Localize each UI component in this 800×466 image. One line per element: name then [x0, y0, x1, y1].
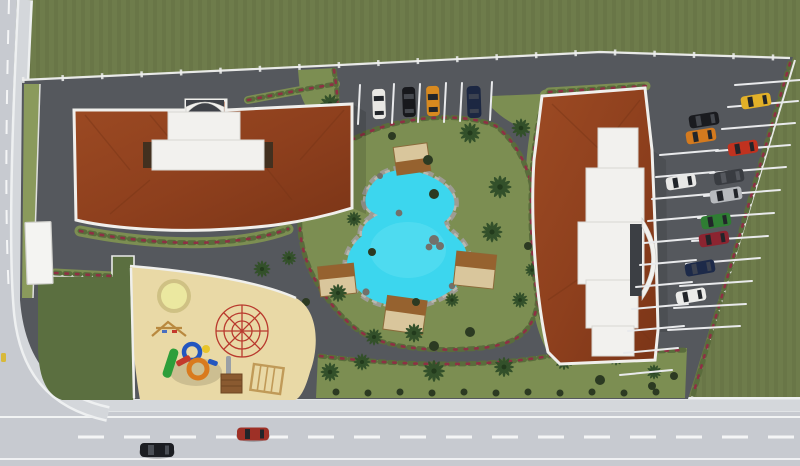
shrub	[493, 390, 500, 397]
swing-seat	[162, 330, 167, 333]
shrub	[423, 155, 433, 165]
shrub	[368, 248, 376, 256]
shrub	[670, 372, 678, 380]
entrance-booth	[25, 222, 53, 285]
car-windshield	[404, 94, 414, 99]
shrub	[429, 390, 436, 397]
shrub	[412, 298, 420, 306]
parked-car	[466, 86, 481, 118]
street-car	[236, 428, 270, 443]
rock	[426, 244, 433, 251]
west-building	[74, 100, 366, 230]
parked-car	[402, 87, 416, 117]
shrub	[397, 389, 404, 396]
car-rear-window	[405, 109, 414, 113]
shrub	[595, 375, 605, 385]
street-car	[139, 443, 175, 459]
crate-body	[221, 374, 242, 393]
car-windshield	[428, 94, 438, 100]
shrub	[465, 327, 475, 337]
car-rear-window	[165, 446, 169, 455]
site-plan-svg	[0, 0, 800, 466]
trampoline	[161, 283, 187, 309]
rock	[377, 173, 383, 179]
parked-car	[426, 86, 440, 116]
shrub	[388, 132, 396, 140]
gate-booth	[25, 222, 53, 285]
south-sidewalk	[0, 400, 800, 412]
shrub	[557, 390, 564, 397]
pergola	[453, 251, 496, 289]
rock	[436, 242, 444, 250]
parked-car	[372, 89, 386, 119]
west-core-upper-tier	[168, 112, 240, 142]
climbing-dome	[216, 305, 268, 357]
shrub	[589, 389, 596, 396]
east-core-top-tier	[598, 128, 638, 170]
south-road-edge-line	[0, 416, 800, 418]
rock	[362, 288, 369, 295]
pool-water-highlight	[370, 222, 446, 278]
car-rear-window	[260, 430, 264, 439]
car-rear-window	[470, 109, 479, 113]
car-windshield	[245, 429, 250, 439]
shrub	[621, 390, 628, 397]
rock	[396, 210, 403, 217]
car-windshield	[148, 445, 154, 455]
shrub	[653, 389, 660, 396]
east-building	[533, 88, 668, 364]
south-road-outer-line	[0, 458, 800, 460]
shrub	[524, 242, 532, 250]
shrub	[429, 341, 439, 351]
swing-seat	[172, 330, 177, 333]
car-windshield	[469, 94, 479, 99]
shrub	[461, 389, 468, 396]
shrub	[365, 390, 372, 397]
car-body	[466, 86, 481, 118]
east-core-upper-tier	[586, 168, 644, 226]
south-road	[0, 412, 800, 466]
shrub	[429, 189, 439, 199]
car-windshield	[374, 96, 384, 101]
wooden-crate	[221, 374, 242, 393]
east-entrance-shadow	[630, 224, 642, 296]
yellow-knob	[202, 345, 210, 353]
car-rear-window	[429, 107, 438, 112]
shrub	[525, 389, 532, 396]
shrub	[333, 389, 340, 396]
car-body	[237, 428, 269, 441]
car-rear-window	[375, 111, 384, 115]
site-plan-canvas	[0, 0, 800, 466]
fire-hydrant	[1, 353, 6, 362]
west-core-lower-tier	[152, 140, 264, 170]
